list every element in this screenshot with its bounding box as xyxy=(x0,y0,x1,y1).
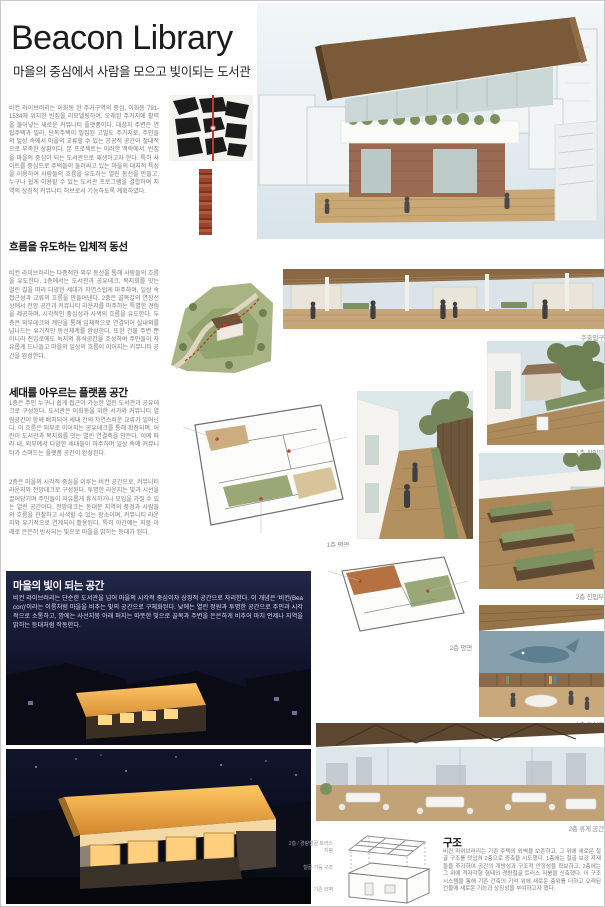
entry-1f-image xyxy=(487,341,604,445)
night-roofscape-image xyxy=(6,635,311,745)
plan-1f-axon xyxy=(165,391,351,537)
site-axon-image xyxy=(165,269,278,375)
site-map-image xyxy=(169,95,253,161)
caption-plan-2f: 2층 평면 xyxy=(346,642,472,652)
section3-panel: 마을의 빛이 되는 공간 비컨 라이브러리는 단순한 도서관을 넘어 마을의 시… xyxy=(6,571,311,745)
section1-title: 흐름을 유도하는 입체적 동선 xyxy=(9,239,128,254)
night-exterior-image xyxy=(6,749,311,904)
intro-paragraph: 비컨 라이브러리는 이화동 한 주거구역의 중심, 이화동 791-1534에 … xyxy=(9,105,159,196)
courtyard-render xyxy=(283,269,604,329)
alley-render xyxy=(357,391,473,539)
site-axon-render xyxy=(165,269,278,375)
entry-2f-image xyxy=(479,453,604,589)
diagram-label-columns: 철골 기둥 구조 xyxy=(283,865,333,872)
poster-board: Beacon Library 마을의 중심에서 사람을 모으고 빛이되는 도서관 xyxy=(0,0,605,907)
section2-body-floor2: 2층은 마을의 시각적 중심을 이루는 비컨 공간으로, 커뮤니티 라운지와 전… xyxy=(9,479,159,537)
section2-title: 세대를 아우르는 플랫폼 공간 xyxy=(9,385,128,400)
caption-entry-2f: 2층 진입부 xyxy=(479,591,604,601)
plan-2f-image xyxy=(316,547,472,639)
hero-render xyxy=(257,3,604,239)
page-subtitle: 마을의 중심에서 사람을 모으고 빛이되는 도서관 xyxy=(13,61,250,80)
courtyard-render-image xyxy=(283,269,604,329)
entry-2f-render xyxy=(479,453,604,589)
section1-body: 비컨 라이브러리는 다층적인 외부 동선을 통해 사람들의 흐름을 유도한다. … xyxy=(9,270,159,361)
plan-2f-axon xyxy=(316,547,472,639)
page-title: Beacon Library xyxy=(11,21,233,55)
library-1f-render xyxy=(479,605,604,717)
diagram-label-roof: 2층 / 경량철골 트러스 지붕 xyxy=(283,841,333,854)
structure-body: 비컨 라이브러리는 기존 주택의 외벽을 보존하고, 그 위에 새로운 철골 구… xyxy=(443,849,601,893)
site-figure-ground-map xyxy=(169,95,253,161)
site-axis-marker xyxy=(199,169,212,235)
hero-render-image xyxy=(257,3,604,239)
library-1f-image xyxy=(479,605,604,717)
structure-diagram-image xyxy=(337,833,439,906)
section3-body: 비컨 라이브러리는 단순한 도서관을 넘어 마을의 시각적 중심이자 상징적 공… xyxy=(13,595,303,631)
lounge-2f-render xyxy=(316,723,604,821)
structure-exploded-diagram xyxy=(337,833,439,906)
caption-lounge-2f: 2층 휴게 공간 xyxy=(454,823,604,833)
section2-body-floor1: 1층은 주민 누구나 쉽게 접근이 가능한 열린 도서관과 공유데크로 구성된다… xyxy=(9,400,159,458)
alley-render-image xyxy=(357,391,473,539)
plan-1f-image xyxy=(165,391,351,537)
section3-title: 마을의 빛이 되는 공간 xyxy=(13,578,104,593)
lounge-2f-image xyxy=(316,723,604,821)
structure-title: 구조 xyxy=(443,835,462,850)
night-exterior-render xyxy=(6,749,311,904)
entry-1f-render xyxy=(487,341,604,445)
diagram-label-existing-wall: 기존 외벽 xyxy=(283,887,333,894)
